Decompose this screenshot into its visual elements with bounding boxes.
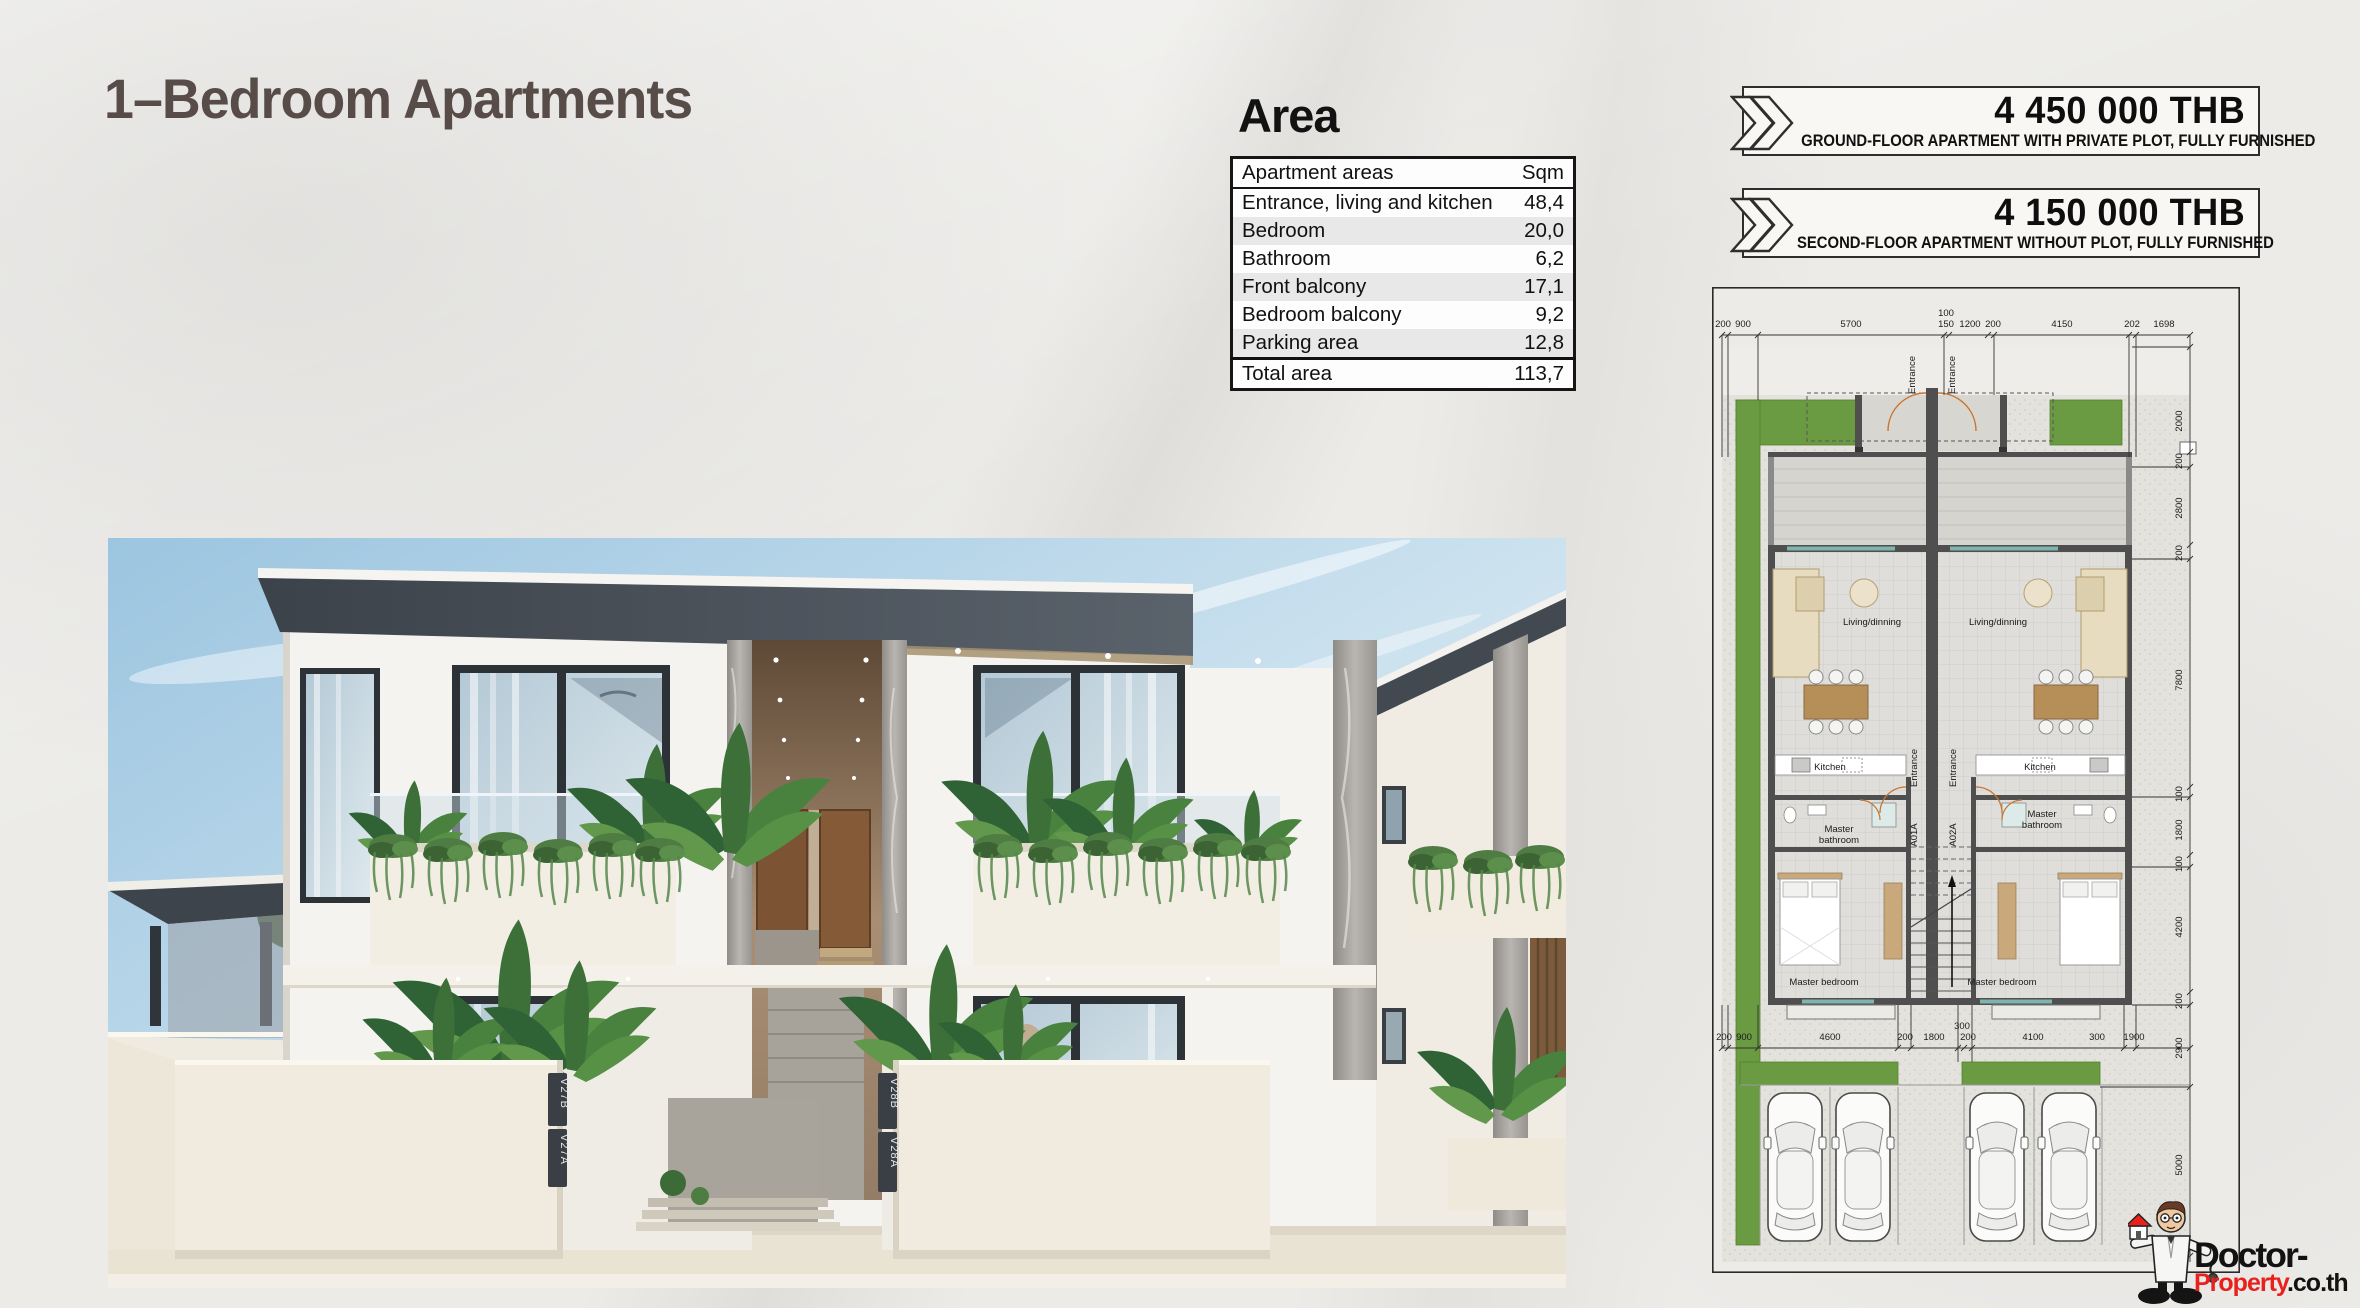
offer-price: 4 150 000 THB xyxy=(1994,193,2245,233)
floor-plan: 200 900 5700 100 150 1200 200 4150 202 1… xyxy=(1712,287,2240,1273)
dim-label: 100 xyxy=(2174,856,2185,872)
dim-label: 4600 xyxy=(1819,1032,1840,1043)
dim-label: 4200 xyxy=(2174,916,2185,937)
total-value: 113,7 xyxy=(1505,359,1575,390)
row-value: 12,8 xyxy=(1505,329,1575,359)
row-value: 20,0 xyxy=(1505,217,1575,245)
dim-label: 900 xyxy=(1735,319,1751,330)
row-value: 17,1 xyxy=(1505,273,1575,301)
dim-label: 200 xyxy=(1985,319,2001,330)
dim-label: 5700 xyxy=(1840,319,1861,330)
offer-description: SECOND-FLOOR APARTMENT WITHOUT PLOT, FUL… xyxy=(1797,233,2274,253)
unit-label: A01A xyxy=(1909,823,1920,847)
unit-sign-label: V28B xyxy=(888,1078,900,1109)
row-label: Front balcony xyxy=(1232,273,1505,301)
dim-label: 200 xyxy=(1960,1032,1976,1043)
area-col-unit: Sqm xyxy=(1505,158,1575,189)
dim-label: 200 xyxy=(1715,319,1731,330)
room-label-master-bathroom: Master xyxy=(2027,809,2056,820)
dim-label: 200 xyxy=(2174,453,2185,469)
area-col-label: Apartment areas xyxy=(1232,158,1505,189)
row-label: Bathroom xyxy=(1232,245,1505,273)
dim-label: 150 xyxy=(1938,319,1954,330)
row-label: Entrance, living and kitchen xyxy=(1232,188,1505,217)
room-label-living: Living/dinning xyxy=(1969,617,2027,628)
dim-label: 300 xyxy=(2089,1032,2105,1043)
area-table: Apartment areas Sqm Entrance, living and… xyxy=(1230,156,1576,391)
dim-label: 200 xyxy=(1897,1032,1913,1043)
dim-label: 1800 xyxy=(2174,819,2185,840)
dim-label: 2000 xyxy=(2174,410,2185,431)
dim-label: 200 xyxy=(2174,993,2185,1009)
dim-label: 5000 xyxy=(2174,1154,2185,1175)
dim-label: 1900 xyxy=(2123,1032,2144,1043)
table-row: Bedroom20,0 xyxy=(1232,217,1575,245)
room-label-entrance: Entrance xyxy=(1907,356,1918,394)
building-render-photo: V27B V27A V28B V28A xyxy=(108,538,1566,1288)
row-label: Parking area xyxy=(1232,329,1505,359)
total-label: Total area xyxy=(1232,359,1505,390)
dim-label: 900 xyxy=(1736,1032,1752,1043)
area-table-total-row: Total area113,7 xyxy=(1232,359,1575,390)
dim-label: 2800 xyxy=(2174,497,2185,518)
table-row: Bathroom6,2 xyxy=(1232,245,1575,273)
room-label-kitchen: Kitchen xyxy=(2024,762,2056,773)
area-heading: Area xyxy=(1238,88,1339,143)
dim-label: 7800 xyxy=(2174,669,2185,690)
dim-label: 1800 xyxy=(1923,1032,1944,1043)
dim-label: 202 xyxy=(2124,319,2140,330)
dim-label: 1200 xyxy=(1959,319,1980,330)
dim-label: 2900 xyxy=(2174,1037,2185,1058)
room-label-living: Living/dinning xyxy=(1843,617,1901,628)
table-row: Bedroom balcony9,2 xyxy=(1232,301,1575,329)
room-label-master-bathroom: bathroom xyxy=(1819,835,1859,846)
brand-logo: Doctor- Property.co.th xyxy=(2128,1188,2360,1306)
row-value: 48,4 xyxy=(1505,188,1575,217)
dim-label: 200 xyxy=(2174,545,2185,561)
brochure-page: 1–Bedroom Apartments Area Apartment area… xyxy=(0,0,2360,1308)
unit-sign-label: V27B xyxy=(558,1078,570,1109)
room-label-kitchen: Kitchen xyxy=(1814,762,1846,773)
dim-label: 1698 xyxy=(2153,319,2174,330)
dim-label: 300 xyxy=(1954,1021,1970,1032)
dim-label: 100 xyxy=(1938,308,1954,319)
dim-label: 4100 xyxy=(2022,1032,2043,1043)
row-label: Bedroom balcony xyxy=(1232,301,1505,329)
table-row: Front balcony17,1 xyxy=(1232,273,1575,301)
unit-sign-label: V27A xyxy=(558,1134,570,1165)
room-label-master-bathroom: bathroom xyxy=(2022,820,2062,831)
brand-logo-text: Doctor- Property.co.th xyxy=(2194,1238,2348,1296)
row-label: Bedroom xyxy=(1232,217,1505,245)
room-label-entrance: Entrance xyxy=(1909,749,1920,787)
double-chevron-icon xyxy=(1730,196,1794,254)
room-label-master-bedroom: Master bedroom xyxy=(1967,977,2036,988)
table-row: Parking area12,8 xyxy=(1232,329,1575,359)
room-label-master-bathroom: Master xyxy=(1824,824,1853,835)
area-table-header: Apartment areas Sqm xyxy=(1232,158,1575,189)
dim-label: 100 xyxy=(2174,786,2185,802)
room-label-entrance: Entrance xyxy=(1947,356,1958,394)
row-value: 9,2 xyxy=(1505,301,1575,329)
offer-price: 4 450 000 THB xyxy=(1994,91,2245,131)
unit-label: A02A xyxy=(1948,823,1959,847)
room-label-entrance: Entrance xyxy=(1948,749,1959,787)
dim-label: 200 xyxy=(1716,1032,1732,1043)
unit-sign-label: V28A xyxy=(888,1137,900,1168)
offer-banner-second-floor: 4 150 000 THB SECOND-FLOOR APARTMENT WIT… xyxy=(1742,188,2260,258)
row-value: 6,2 xyxy=(1505,245,1575,273)
double-chevron-icon xyxy=(1730,94,1794,152)
page-title: 1–Bedroom Apartments xyxy=(104,66,692,131)
brand-name-top: Doctor- xyxy=(2194,1238,2351,1273)
dim-label: 4150 xyxy=(2051,319,2072,330)
table-row: Entrance, living and kitchen48,4 xyxy=(1232,188,1575,217)
room-label-master-bedroom: Master bedroom xyxy=(1789,977,1858,988)
offer-banner-ground-floor: 4 450 000 THB GROUND-FLOOR APARTMENT WIT… xyxy=(1742,86,2260,156)
offer-description: GROUND-FLOOR APARTMENT WITH PRIVATE PLOT… xyxy=(1801,131,2315,151)
